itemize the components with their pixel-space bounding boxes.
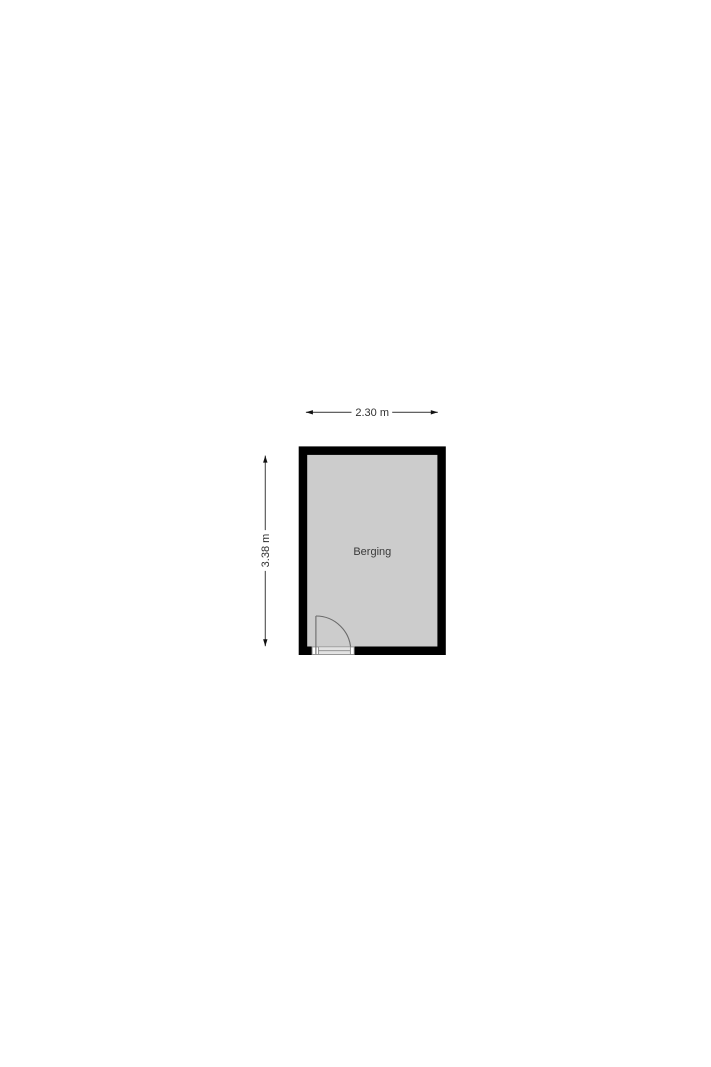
svg-text:2.30 m: 2.30 m	[355, 407, 389, 419]
svg-text:3.38 m: 3.38 m	[260, 534, 272, 568]
svg-text:Berging: Berging	[353, 546, 391, 558]
